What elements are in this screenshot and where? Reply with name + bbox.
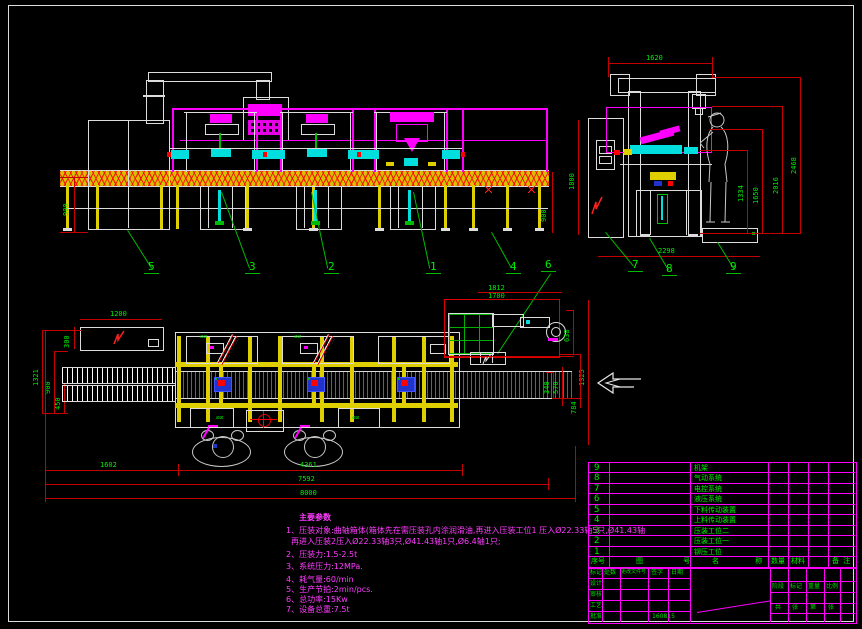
dim-line <box>80 319 162 320</box>
station-label-4: 4 <box>506 261 521 274</box>
station-column <box>376 112 377 172</box>
tb-date: 160815 <box>652 614 675 620</box>
gantry-post <box>446 108 448 172</box>
station-chip <box>300 343 318 354</box>
bom-vline <box>788 462 789 567</box>
workpiece-core <box>218 380 225 386</box>
press-slide-box <box>301 124 335 135</box>
dim-ext <box>575 446 576 502</box>
bom-row-no: 7 <box>594 485 599 494</box>
dim-ext <box>546 372 554 373</box>
side-clamp-arm <box>630 145 682 154</box>
part-label-7: 7 <box>628 259 643 272</box>
dim-ext <box>462 464 463 476</box>
dim-label: 1700 <box>488 293 505 300</box>
dim-ext <box>178 464 179 476</box>
note-line: 4、耗气量:60/min <box>286 576 354 584</box>
side-base-rib <box>650 190 651 235</box>
bom-row-name: 机架 <box>694 465 708 472</box>
bom-header: 图 号 <box>636 558 708 565</box>
side-base <box>636 190 702 237</box>
dim-line <box>762 129 763 234</box>
bom-hline <box>588 483 855 484</box>
bom-row-no: 5 <box>594 506 599 515</box>
tool-hook <box>208 425 218 427</box>
dim-ext <box>444 356 574 357</box>
infeed-cabinet <box>88 120 170 230</box>
dim-ext <box>45 330 46 502</box>
conveyor-leg <box>472 185 475 229</box>
notes-title: 主要参数 <box>299 514 331 522</box>
bed-crossbar <box>177 336 181 422</box>
tool-rail <box>360 148 462 149</box>
bom-row-no: 2 <box>594 537 599 546</box>
arm-tip <box>167 152 171 157</box>
dim-label: 1334 <box>738 172 745 202</box>
tb-sheet-label: 张 <box>828 605 834 611</box>
operator-hand <box>323 430 336 441</box>
lift-cylinder <box>218 190 221 223</box>
bom-row-name: 下料传动装置 <box>694 507 736 514</box>
clamp-arm <box>267 150 285 159</box>
lightning-icon <box>112 330 126 346</box>
tb-hline <box>770 592 855 593</box>
under-rib <box>328 186 329 228</box>
leg-foot <box>469 228 478 231</box>
dim-line <box>74 177 75 233</box>
title-block <box>588 567 857 624</box>
bom-row-name: 电控系统 <box>694 486 722 493</box>
bom-hline <box>588 525 855 526</box>
station-column <box>254 112 255 172</box>
bom-row-name: 压装工位二 <box>694 528 729 535</box>
dim-ext <box>710 129 762 130</box>
leg-foot <box>63 228 72 231</box>
arm-tip <box>461 152 465 157</box>
dim-line <box>782 106 783 234</box>
bom-row-no: 4 <box>594 516 599 525</box>
station-column <box>350 112 351 172</box>
diameter-marks: ⌀⌀ <box>352 415 359 421</box>
dim-label: 1620 <box>646 55 663 62</box>
dim-label: 900 <box>541 196 548 222</box>
dim-ext <box>60 232 88 233</box>
dim-ext <box>700 150 747 151</box>
under-rib <box>304 186 305 228</box>
tb-hline <box>588 600 690 601</box>
bom-vline <box>768 462 769 567</box>
lift-cylinder <box>408 190 411 223</box>
note-line: 7、设备总重:7.5t <box>286 606 350 614</box>
dim-line <box>608 63 712 64</box>
note-line: 6、总功率:15Kw <box>286 596 348 604</box>
dim-ext <box>712 106 782 107</box>
tool-hook <box>300 425 310 427</box>
tb-sign-label: 审核 <box>590 592 602 598</box>
press-cone <box>404 138 420 152</box>
robot-gripper <box>548 338 558 341</box>
note-line: 2、压装力:1.5-2.5t <box>286 551 357 559</box>
duct-flange <box>143 95 165 97</box>
under-rib <box>422 186 423 228</box>
part-label-9: 9 <box>726 261 741 274</box>
bom-row-name: 上料传动装置 <box>694 517 736 524</box>
station-beam <box>184 112 257 113</box>
press-station <box>186 112 256 242</box>
arm-tip <box>263 152 267 157</box>
dim-label: 7592 <box>298 476 315 483</box>
tb-vline <box>602 567 603 622</box>
bom-hline <box>588 504 855 505</box>
bom-vline <box>690 462 691 567</box>
bom-hline <box>588 472 855 473</box>
guide-block <box>386 162 394 166</box>
pallet-mark <box>485 186 492 193</box>
diameter-marks: ⌀⌀ <box>216 415 223 421</box>
station-label-5: 5 <box>144 261 159 274</box>
bom-row-no: 1 <box>594 548 599 557</box>
cad-drawing: 900 900 5 3 2 1 4 6 1800 <box>0 0 862 629</box>
dim-label: 1602 <box>100 462 117 469</box>
robot-arm <box>520 317 550 328</box>
note-line: 3、系统压力:12MPa. <box>286 563 363 571</box>
bom-row-no: 3 <box>594 527 599 536</box>
pallet-mark <box>528 186 535 193</box>
conveyor-leg <box>506 185 509 229</box>
dim-ext <box>42 330 82 331</box>
dim-line <box>42 330 43 414</box>
plan-conveyor-rollers <box>62 386 176 401</box>
tb-col-label: 标记 <box>590 570 602 576</box>
tb-vline <box>690 567 691 622</box>
press-head <box>390 112 434 122</box>
station-column <box>282 112 283 172</box>
conveyor-leg <box>176 185 179 229</box>
tb-hline <box>770 581 855 582</box>
gantry-post <box>256 108 258 172</box>
diameter-marks: ⌀⌀ <box>200 334 207 340</box>
dim-ext <box>608 57 609 77</box>
dim-label: 2016 <box>773 164 780 194</box>
dim-label: 2298 <box>658 248 675 255</box>
press-slide-box <box>205 124 239 135</box>
cabinet-divider <box>128 120 129 228</box>
bom-vline <box>828 462 829 567</box>
dim-line <box>588 300 589 445</box>
dim-label: 1321 <box>33 356 40 386</box>
station-label-3: 3 <box>245 261 260 274</box>
dim-label: 1800 <box>569 160 576 190</box>
machine-foot <box>688 234 698 237</box>
cabinet-switch <box>148 339 159 347</box>
dim-label: 784 <box>571 394 578 414</box>
dim-line <box>562 367 563 406</box>
station-column <box>186 112 187 172</box>
tb-col-label: 更改文件号 <box>621 570 646 575</box>
dim-label: 4361 <box>300 462 317 469</box>
bom-hline <box>588 514 855 515</box>
stub-rib <box>492 352 493 363</box>
bom-row-no: 6 <box>594 495 599 504</box>
dim-ext <box>566 310 574 311</box>
leg-foot <box>535 228 544 231</box>
gantry-post <box>172 108 174 172</box>
press-station-main <box>376 112 446 242</box>
workpiece-dot <box>398 378 400 380</box>
tb-sheet-label: 张 <box>792 605 798 611</box>
station-column <box>444 112 445 172</box>
tool-block <box>307 149 327 157</box>
dim-label: 2468 <box>791 144 798 174</box>
workpiece-dot <box>215 378 217 380</box>
press-head <box>210 114 232 123</box>
tb-sign-label: 设计 <box>590 581 602 587</box>
tb-sheet-label: 共 <box>775 605 781 611</box>
dim-ext <box>60 177 88 178</box>
bom-hline <box>588 535 855 536</box>
under-rib <box>208 186 209 228</box>
station-label-1: 1 <box>426 261 441 274</box>
cylinder-base <box>405 221 414 225</box>
bom-header: 序号 <box>591 558 605 565</box>
bom-header: 名 称 <box>712 558 778 565</box>
tb-col-label: 签字 <box>651 570 663 576</box>
leg-foot <box>503 228 512 231</box>
bom-hline <box>588 493 855 494</box>
clamp-arm <box>442 150 460 159</box>
bom-row-name: 气动系统 <box>694 475 722 482</box>
tb-stage-label: 标记 <box>790 584 802 590</box>
station-label-6: 6 <box>541 259 556 272</box>
tb-hline <box>588 578 690 579</box>
clamp-arm <box>171 150 189 159</box>
side-fixture <box>650 172 676 180</box>
side-base-rib <box>686 190 687 235</box>
side-guide <box>624 149 632 155</box>
lightning-icon-small <box>482 353 492 365</box>
dim-line <box>578 120 579 235</box>
press-slide <box>315 133 317 149</box>
side-clamp-arm <box>684 147 698 154</box>
bom-row-no: 8 <box>594 474 599 483</box>
side-fixture-block <box>654 181 662 186</box>
dim-label: 300 <box>64 328 71 348</box>
bom-header: 材料 <box>791 558 805 565</box>
stub-rib <box>480 352 481 363</box>
tb-col-label: 日期 <box>671 570 683 576</box>
plan-conveyor-edge <box>62 401 176 402</box>
tool-block <box>404 158 418 166</box>
dim-line <box>45 470 462 471</box>
dim-label: 1812 <box>488 285 505 292</box>
dim-line <box>747 150 748 234</box>
dim-ext <box>560 354 581 355</box>
tb-sheet-label: 第 <box>810 605 816 611</box>
bom-hline <box>588 546 855 547</box>
cylinder-base <box>215 221 224 225</box>
dim-line <box>45 484 548 485</box>
guide-block <box>428 162 436 166</box>
workpiece-core <box>401 380 408 386</box>
bom-row-name: 液压系统 <box>694 496 722 503</box>
bom-header: 备 注 <box>832 558 850 565</box>
dim-label: 570 <box>553 374 560 394</box>
dim-label: 340 <box>544 376 551 394</box>
dim-ext <box>54 351 68 352</box>
dim-label: 450 <box>55 388 62 410</box>
clamp-arm <box>361 150 379 159</box>
note-line: 再进入压装2压入Ø22.33轴3只,Ø41.43轴1只,Ø6.4轴1只; <box>291 538 501 546</box>
dim-line <box>580 354 581 408</box>
dim-line <box>573 310 574 355</box>
dim-ext <box>700 233 800 234</box>
bom-row-name: 铆压工位 <box>694 549 722 556</box>
flow-arrow-icon <box>596 372 642 394</box>
dim-label: 1200 <box>110 311 127 318</box>
tb-hline <box>588 589 690 590</box>
side-fixture-pin <box>668 181 673 186</box>
dim-label: 1650 <box>753 174 760 204</box>
tb-stage-label: 比例 <box>826 584 838 590</box>
gantry-post <box>546 108 548 172</box>
press-slide <box>219 133 221 149</box>
press-head <box>306 114 328 123</box>
part-label-8: 8 <box>662 263 677 276</box>
dim-ext <box>548 478 549 490</box>
operator-hand <box>231 430 244 441</box>
dim-ext <box>552 398 582 399</box>
tb-sign-label: 工艺 <box>590 603 602 609</box>
press-frame-cap <box>610 74 630 96</box>
tb-hline <box>770 613 855 614</box>
diameter-marks: ⌀⌀ <box>294 334 301 340</box>
bom-vline <box>808 462 809 567</box>
bom-row-name: 压装工位一 <box>694 538 729 545</box>
dim-line <box>598 256 760 257</box>
chip-mark <box>304 346 308 349</box>
robot-base-grid <box>448 313 494 355</box>
bom-vline <box>609 462 610 567</box>
workpiece-core <box>311 380 318 386</box>
tool-block <box>211 149 231 157</box>
dim-label: 638 <box>564 320 571 342</box>
chip-mark <box>210 346 214 349</box>
gantry-post <box>352 108 354 172</box>
robot-joint-center <box>551 327 561 337</box>
dim-label: 900 <box>45 370 52 394</box>
gantry-post <box>462 108 464 172</box>
screen-window <box>599 156 612 164</box>
tb-col-label: 处数 <box>604 570 616 576</box>
bom-header: 数量 <box>771 558 785 565</box>
tb-stage-label: 重量 <box>808 584 820 590</box>
station-label-2: 2 <box>324 261 339 274</box>
dim-line <box>45 498 575 499</box>
dim-label: 900 <box>63 190 70 216</box>
side-stop <box>614 150 620 155</box>
note-line: 5、生产节拍:2min/pcs. <box>286 586 373 594</box>
dim-line <box>800 77 801 234</box>
duct-stack <box>146 80 164 124</box>
tb-stage-label: 阶段 <box>772 584 784 590</box>
pump-symbol <box>258 414 271 427</box>
dim-ext <box>712 77 800 78</box>
tb-sign-label: 批准 <box>590 614 602 620</box>
tb-hline <box>588 611 690 612</box>
robot-sensor <box>526 320 530 324</box>
lightning-icon <box>590 196 604 216</box>
dim-line <box>552 172 553 233</box>
under-rib <box>398 186 399 228</box>
pump-crosshair <box>263 411 264 428</box>
operator-head <box>304 436 326 458</box>
operator-platform <box>702 228 758 243</box>
gantry-beam <box>172 108 548 110</box>
machine-foot <box>640 234 650 237</box>
arm-tip <box>357 152 361 157</box>
plan-conveyor-rollers <box>62 368 176 383</box>
overhead-duct <box>148 72 272 82</box>
tool-mark <box>213 444 217 448</box>
tb-vline <box>648 567 649 622</box>
workpiece-dot <box>308 378 310 380</box>
dim-label: 8000 <box>300 490 317 497</box>
station-beam <box>280 112 353 113</box>
side-table <box>620 164 712 165</box>
plan-conveyor-edge <box>62 383 176 384</box>
bom-row-no: 9 <box>594 464 599 473</box>
dim-ext <box>712 57 713 77</box>
tb-vline <box>620 567 621 622</box>
